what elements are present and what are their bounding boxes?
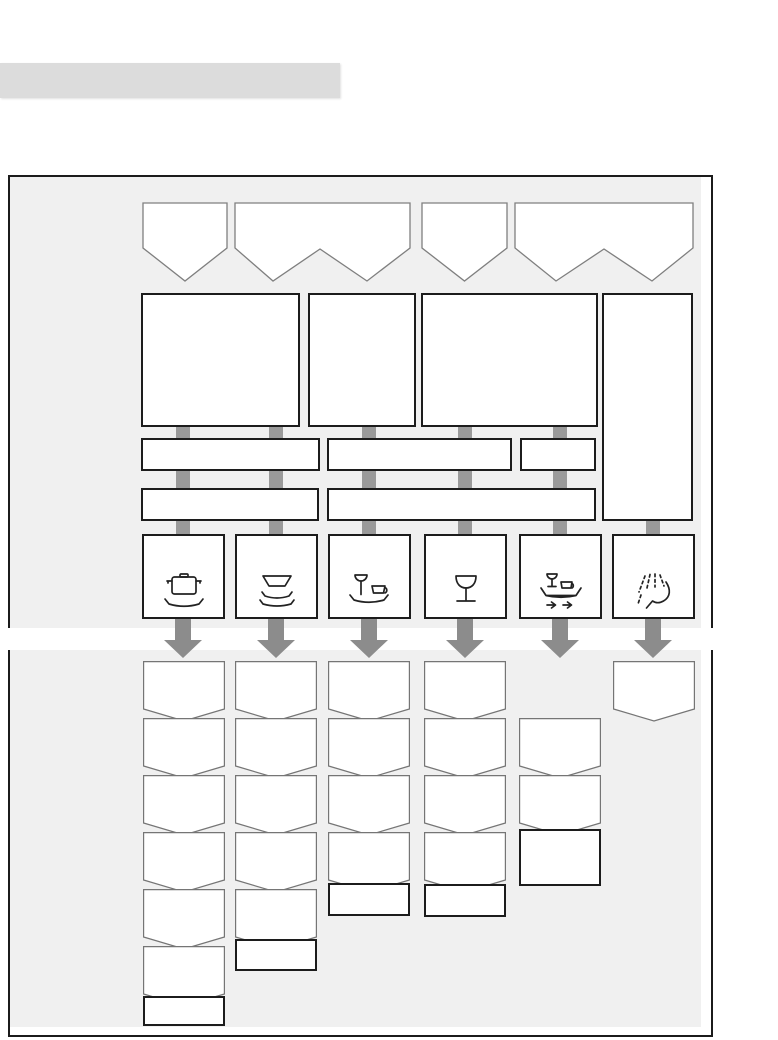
bowls-icon	[255, 573, 299, 611]
connector-stub	[362, 427, 376, 438]
tray-arrows-icon	[539, 573, 583, 611]
flow-down-arrow-icon	[164, 619, 202, 658]
step-card	[519, 718, 601, 780]
step-card	[424, 718, 506, 780]
end-card	[328, 883, 410, 916]
flow-down-arrow-icon	[541, 619, 579, 658]
program-box	[602, 293, 693, 521]
program-banner	[234, 202, 411, 283]
option-bar	[520, 438, 596, 471]
manual-page	[0, 0, 778, 1040]
connector-stub	[362, 521, 376, 534]
option-bar	[327, 488, 596, 521]
program-banner	[514, 202, 694, 283]
connector-stub	[269, 521, 283, 534]
option-bar	[327, 438, 512, 471]
program-box	[421, 293, 598, 427]
pot-icon	[162, 573, 206, 611]
step-card	[143, 718, 225, 780]
end-card	[519, 829, 601, 886]
glass-and-cup-icon	[348, 573, 392, 611]
flow-down-arrow-icon	[350, 619, 388, 658]
load-type-box	[328, 534, 411, 619]
step-card	[328, 718, 410, 780]
option-bar	[141, 488, 319, 521]
load-type-box	[424, 534, 507, 619]
connector-stub	[269, 427, 283, 438]
step-card	[328, 661, 410, 723]
step-card	[235, 661, 317, 723]
step-card	[328, 775, 410, 837]
step-card	[235, 718, 317, 780]
flow-down-arrow-icon	[634, 619, 672, 658]
step-card	[424, 661, 506, 723]
flow-down-arrow-icon	[446, 619, 484, 658]
load-type-box	[612, 534, 695, 619]
load-type-box	[235, 534, 318, 619]
connector-stub	[553, 427, 567, 438]
end-card	[424, 884, 506, 917]
diagram-stage	[0, 0, 778, 1040]
program-box	[141, 293, 300, 427]
step-card	[143, 889, 225, 951]
step-card	[235, 775, 317, 837]
step-card	[613, 661, 695, 723]
step-card	[424, 775, 506, 837]
step-card	[143, 775, 225, 837]
end-card	[143, 996, 225, 1026]
step-card	[143, 661, 225, 723]
program-banner	[142, 202, 228, 283]
program-box	[308, 293, 416, 427]
connector-stub	[553, 521, 567, 534]
load-type-box	[519, 534, 602, 619]
connector-stub	[176, 427, 190, 438]
step-card	[235, 832, 317, 894]
end-card	[235, 939, 317, 971]
connector-stub	[269, 471, 283, 488]
wine-glass-icon	[444, 573, 488, 611]
step-card	[143, 832, 225, 894]
spray-icon	[632, 573, 676, 611]
option-bar	[141, 438, 320, 471]
program-banner	[421, 202, 508, 283]
flow-down-arrow-icon	[257, 619, 295, 658]
connector-stub	[458, 521, 472, 534]
connector-stub	[553, 471, 567, 488]
load-type-box	[142, 534, 225, 619]
step-card	[519, 775, 601, 837]
connector-stub	[458, 427, 472, 438]
connector-stub	[176, 521, 190, 534]
connector-stub	[176, 471, 190, 488]
connector-stub	[362, 471, 376, 488]
connector-stub	[458, 471, 472, 488]
connector-stub	[646, 521, 660, 534]
